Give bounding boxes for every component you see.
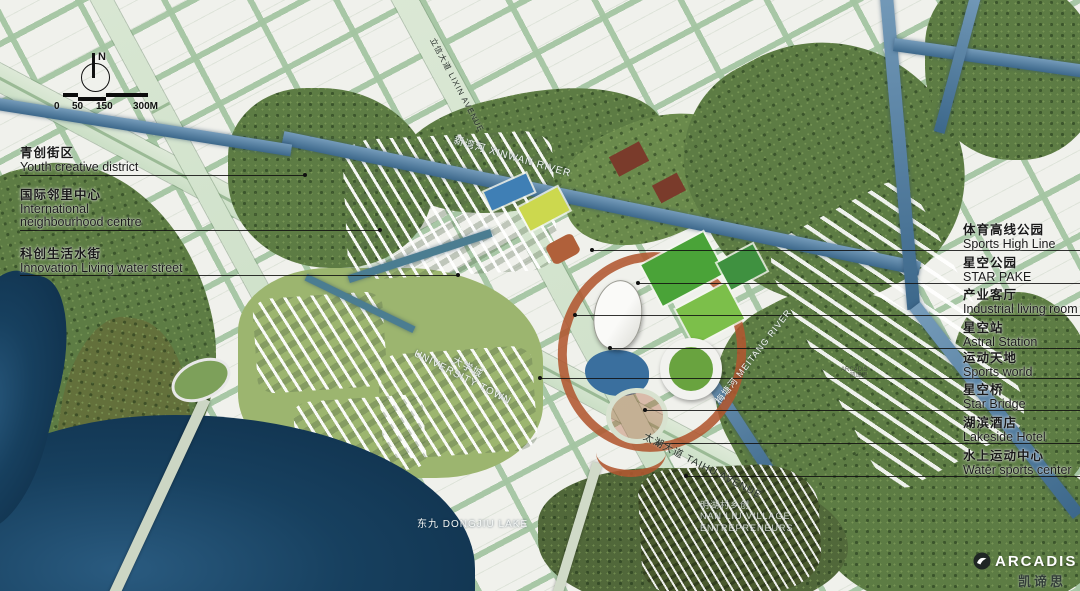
compass-needle [92,53,95,78]
label-sports-high-line-en: Sports High Line [963,238,1055,252]
arcadis-icon [973,552,991,570]
arcadis-watermark: ARCADIS 凯谛思 [841,367,868,379]
label-lakeside-hotel-zh: 湖滨酒店 [963,417,1017,431]
label-astral-station-en: Astral Station [963,336,1037,350]
label-star-park-en: STAR PAKE [963,271,1031,285]
label-industrial-living-room-en: Industrial living room [963,303,1078,317]
label-industrial-living-room-zh: 产业客厅 [963,289,1017,303]
masterplan-canvas: N 0 50 150 300M 青创街区 Youth creative dist… [0,0,1080,591]
scale-segment [106,93,148,97]
leader-line [20,230,380,231]
label-international-centre-en2: neighbourhood centre [20,216,142,230]
leader-dot [303,173,307,177]
scale-label-300m: 300M [133,101,158,112]
label-innovation-water-street-zh: 科创生活水街 [20,248,101,262]
leader-dot [636,281,640,285]
label-star-park-zh: 星空公园 [963,257,1017,271]
compass-n-label: N [98,51,106,63]
arcadis-brand-text: ARCADIS [995,553,1077,570]
label-star-bridge-en: Star Bridge [963,398,1026,412]
village-en1: NAN LIU VILLAGE [700,511,794,522]
label-innovation-water-street-en: Innovation Living water street [20,262,183,276]
scale-label-50: 50 [72,101,83,112]
leader-dot [456,273,460,277]
arcadis-brand-zh: 凯谛思 [1018,571,1066,590]
leader-dot [608,346,612,350]
leader-line [20,175,305,176]
leader-dot [538,376,542,380]
scale-segment [63,93,78,97]
label-youth-creative-district-zh: 青创街区 [20,147,74,161]
village-zh: 明湖村乡创 [700,500,794,511]
compass-circle [81,63,110,92]
label-international-centre-zh: 国际邻里中心 [20,189,101,203]
label-sports-high-line-zh: 体育高线公园 [963,224,1044,238]
watermark-zh: 凯谛思 [841,373,868,379]
label-sports-world-zh: 运动天地 [963,352,1017,366]
dongjiu-lake-zh: 东九 [417,519,439,530]
label-star-bridge-zh: 星空桥 [963,384,1004,398]
scale-label-0: 0 [54,101,60,112]
leader-dot [378,228,382,232]
label-sports-world-en: Sports world [963,366,1032,380]
village-en2: ENTREPRENEURS [700,523,794,534]
dongjiu-lake-label: 东九 DONGJIU LAKE [417,515,528,530]
label-youth-creative-district-en: Youth creative district [20,161,138,175]
label-lakeside-hotel-en: Lakeside Hotel [963,431,1046,445]
leader-dot [590,248,594,252]
label-water-sports-center-en: Water sports center [963,464,1072,478]
leader-dot [573,313,577,317]
scale-label-150: 150 [96,101,113,112]
leader-dot [643,408,647,412]
label-astral-station-zh: 星空站 [963,322,1004,336]
leader-dot [684,474,688,478]
village-label: 明湖村乡创 NAN LIU VILLAGE ENTREPRENEURS [700,500,794,534]
label-water-sports-center-zh: 水上运动中心 [963,450,1044,464]
dongjiu-lake-en: DONGJIU LAKE [443,519,528,530]
